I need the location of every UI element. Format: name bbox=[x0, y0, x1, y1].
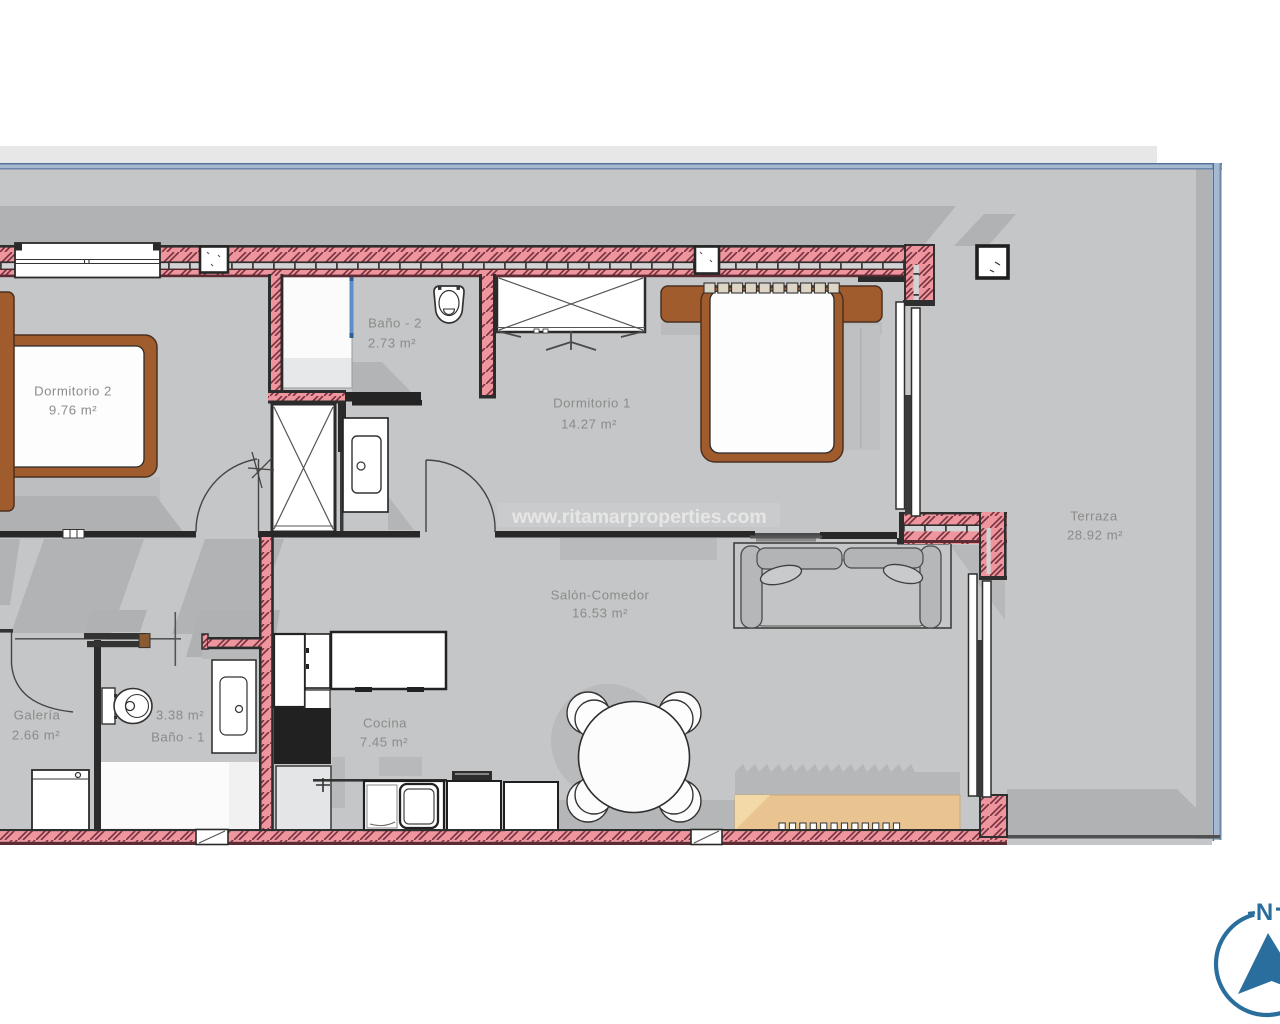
svg-text:Baño - 2: Baño - 2 bbox=[368, 316, 422, 331]
svg-text:Salón-Comedor: Salón-Comedor bbox=[551, 588, 650, 603]
svg-text:Baño - 1: Baño - 1 bbox=[151, 730, 205, 745]
svg-text:Dormitorio 1: Dormitorio 1 bbox=[553, 396, 631, 411]
svg-text:Dormitorio 2: Dormitorio 2 bbox=[34, 384, 112, 399]
svg-text:7.45 m²: 7.45 m² bbox=[360, 735, 408, 750]
svg-text:2.66 m²: 2.66 m² bbox=[12, 728, 60, 743]
svg-text:www.ritamarproperties.com: www.ritamarproperties.com bbox=[511, 506, 767, 528]
svg-text:2.73 m²: 2.73 m² bbox=[368, 336, 416, 351]
svg-text:9.76 m²: 9.76 m² bbox=[49, 403, 97, 418]
svg-text:N: N bbox=[1256, 899, 1273, 926]
svg-text:16.53 m²: 16.53 m² bbox=[572, 606, 628, 621]
svg-text:3.38 m²: 3.38 m² bbox=[156, 708, 204, 723]
svg-text:Galería: Galería bbox=[14, 708, 61, 723]
svg-text:Cocina: Cocina bbox=[363, 716, 407, 731]
svg-text:28.92 m²: 28.92 m² bbox=[1067, 528, 1123, 543]
svg-text:14.27 m²: 14.27 m² bbox=[561, 417, 617, 432]
svg-text:Terraza: Terraza bbox=[1070, 509, 1118, 524]
